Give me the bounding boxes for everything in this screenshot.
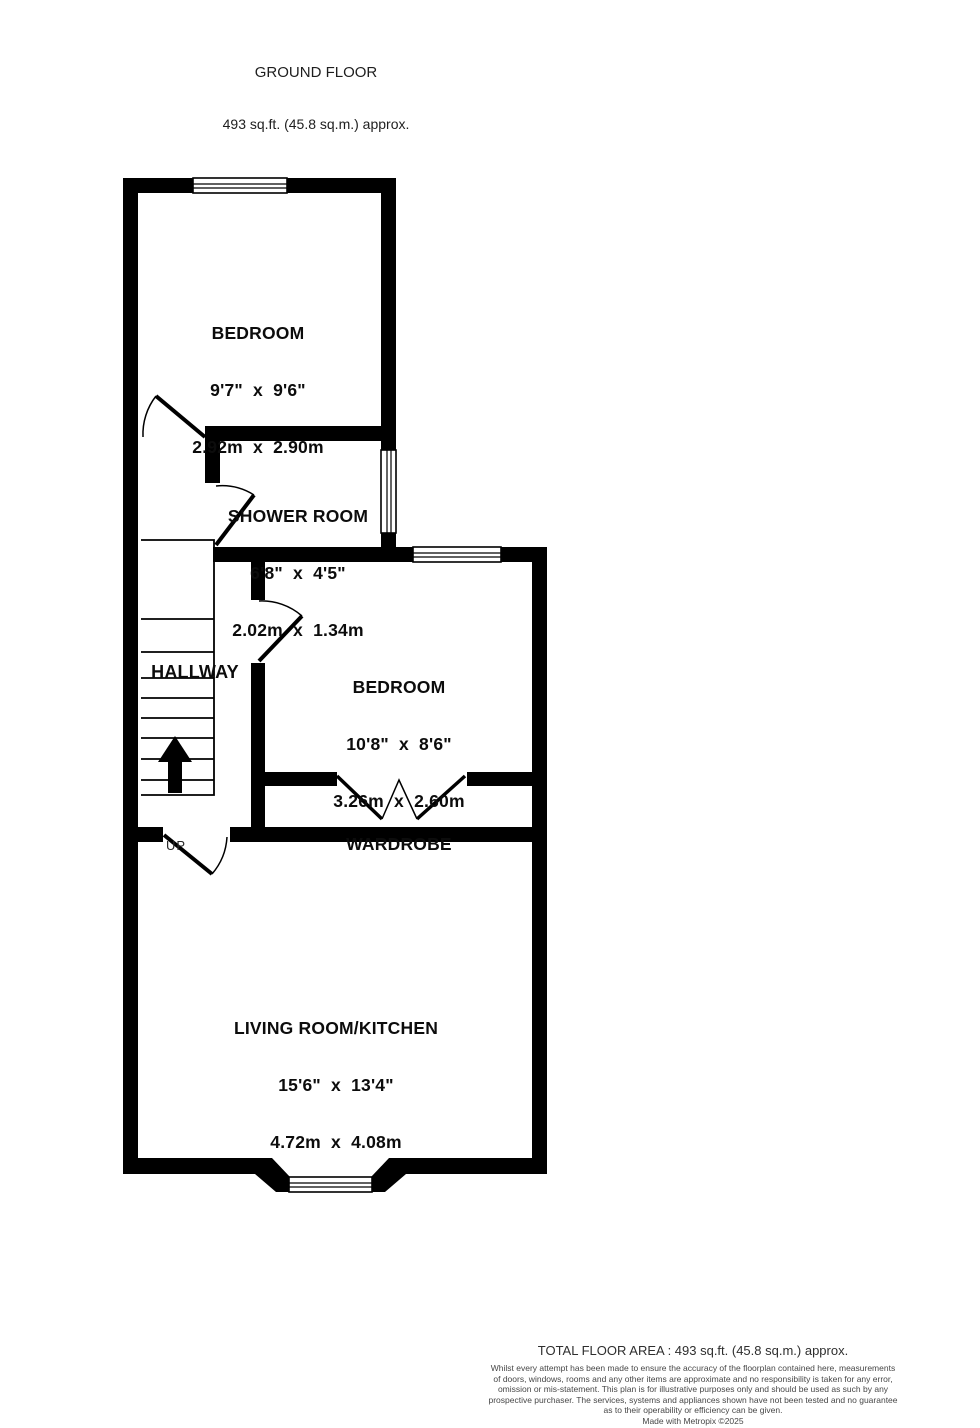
wardrobe-label: WARDROBE — [346, 797, 452, 892]
bedroom1-window — [193, 178, 287, 193]
left-outer-wall — [123, 178, 138, 1174]
metropix-credit: Made with Metropix ©2025 — [393, 1416, 980, 1427]
disclaimer-line: omission or mis-statement. This plan is … — [393, 1384, 980, 1395]
disclaimer-line: prospective purchaser. The services, sys… — [393, 1395, 980, 1406]
shower-name: SHOWER ROOM — [228, 507, 368, 526]
stairs-up-arrow — [158, 736, 192, 793]
wardrobe-top-wall-left — [251, 772, 337, 786]
bedroom1-label: BEDROOM 9'7" x 9'6" 2.92m x 2.90m — [192, 286, 323, 495]
bedroom1-top-wall-left — [123, 178, 193, 193]
living-name: LIVING ROOM/KITCHEN — [234, 1019, 438, 1038]
bedroom1-top-wall-right — [287, 178, 396, 193]
floorplan-drawing — [0, 0, 980, 1428]
total-floor-area: TOTAL FLOOR AREA : 493 sq.ft. (45.8 sq.m… — [393, 1343, 980, 1358]
bedroom1-metric: 2.92m x 2.90m — [192, 438, 323, 457]
up-arrow-shaft — [168, 762, 182, 793]
plan-subtitle: 493 sq.ft. (45.8 sq.m.) approx. — [223, 117, 410, 132]
bedroom1-right-wall — [381, 178, 396, 450]
footer-block: TOTAL FLOOR AREA : 493 sq.ft. (45.8 sq.m… — [393, 1343, 980, 1427]
plan-title-block: GROUND FLOOR 493 sq.ft. (45.8 sq.m.) app… — [223, 29, 410, 168]
bedroom1-name: BEDROOM — [192, 324, 323, 343]
disclaimer-line: Whilst every attempt has been made to en… — [393, 1363, 980, 1374]
right-outer-wall — [532, 547, 547, 1174]
bedroom2-window — [413, 547, 501, 562]
living-room-label: LIVING ROOM/KITCHEN 15'6" x 13'4" 4.72m … — [234, 981, 438, 1190]
plan-title: GROUND FLOOR — [223, 65, 410, 81]
bedroom2-imperial: 10'8" x 8'6" — [333, 735, 464, 754]
hallway-label: HALLWAY — [151, 625, 239, 720]
bedroom1-imperial: 9'7" x 9'6" — [192, 381, 323, 400]
bedroom2-left-wall-lower — [251, 663, 265, 842]
disclaimer-line: as to their operability or efficiency ca… — [393, 1405, 980, 1416]
wardrobe-name: WARDROBE — [346, 835, 452, 854]
up-text: UP — [166, 838, 186, 853]
wardrobe-top-wall-right — [467, 772, 547, 786]
shower-imperial: 6'8" x 4'5" — [228, 564, 368, 583]
living-imperial: 15'6" x 13'4" — [234, 1076, 438, 1095]
up-arrow-head — [158, 736, 192, 762]
hallway-bottom-wall-left — [123, 827, 163, 842]
disclaimer-line: of doors, windows, rooms and any other i… — [393, 1374, 980, 1385]
disclaimer: Whilst every attempt has been made to en… — [393, 1363, 980, 1416]
hallway-name: HALLWAY — [151, 663, 239, 682]
bedroom2-name: BEDROOM — [333, 678, 464, 697]
living-metric: 4.72m x 4.08m — [234, 1133, 438, 1152]
shower-window — [381, 450, 396, 533]
shower-metric: 2.02m x 1.34m — [228, 621, 368, 640]
stairs-up-label: UP — [166, 808, 186, 883]
floorplan-page: GROUND FLOOR 493 sq.ft. (45.8 sq.m.) app… — [0, 0, 980, 1428]
